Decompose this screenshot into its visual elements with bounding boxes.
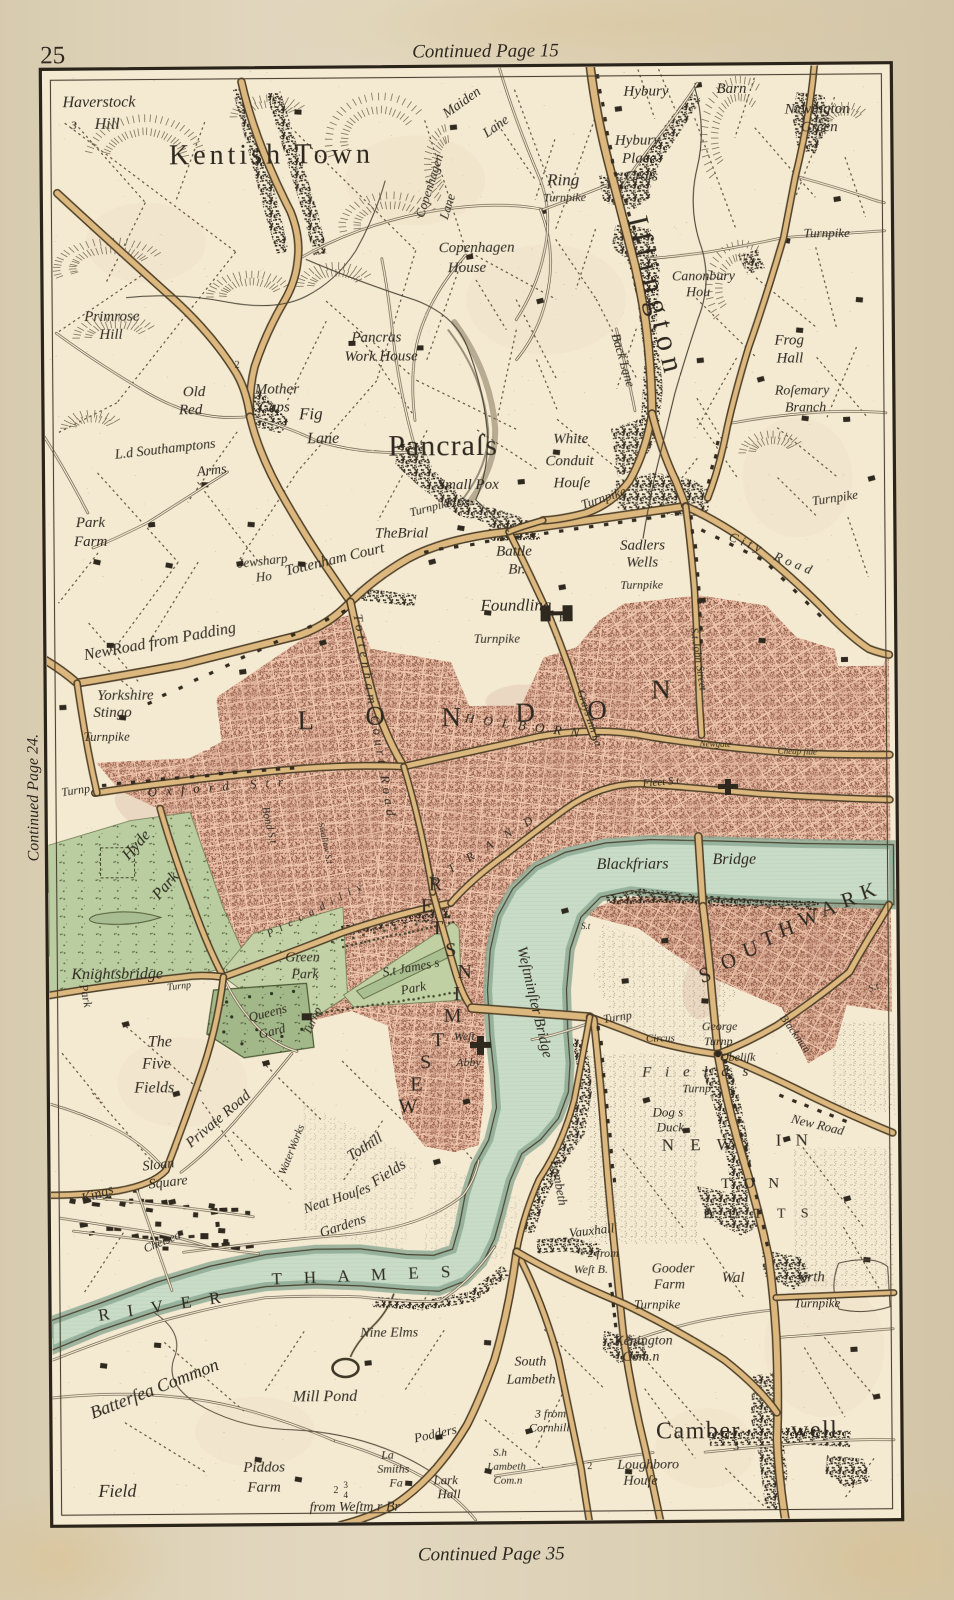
svg-text:Piddos: Piddos xyxy=(242,1459,285,1475)
svg-text:Stingo: Stingo xyxy=(93,705,132,721)
svg-text:George: George xyxy=(702,1019,738,1033)
svg-text:Battle: Battle xyxy=(496,544,532,560)
svg-text:I: I xyxy=(453,983,460,1005)
svg-text:Haverstock: Haverstock xyxy=(61,94,136,112)
svg-text:The: The xyxy=(148,1033,172,1050)
svg-text:Farm: Farm xyxy=(246,1480,281,1496)
svg-text:Br.: Br. xyxy=(508,562,525,578)
svg-text:3: 3 xyxy=(70,118,77,132)
svg-text:Lambeth: Lambeth xyxy=(486,1461,526,1473)
svg-text:White: White xyxy=(553,431,588,447)
svg-text:Com.n: Com.n xyxy=(622,1350,659,1365)
svg-text:Fig: Fig xyxy=(298,404,323,423)
svg-text:Turnp: Turnp xyxy=(704,1034,733,1048)
svg-text:Continued Page 24.: Continued Page 24. xyxy=(25,734,43,862)
svg-text:Cornhill: Cornhill xyxy=(529,1420,570,1434)
svg-text:2: 2 xyxy=(235,360,240,371)
svg-text:Pancras: Pancras xyxy=(350,330,401,346)
svg-text:E: E xyxy=(421,895,433,917)
svg-text:Farm: Farm xyxy=(73,534,108,550)
svg-text:4: 4 xyxy=(343,1490,348,1500)
svg-text:S.t: S.t xyxy=(581,921,591,931)
svg-text:Newington: Newington xyxy=(784,101,850,118)
svg-text:25: 25 xyxy=(40,42,65,69)
svg-text:Barn: Barn xyxy=(716,81,746,97)
svg-text:Primrose: Primrose xyxy=(83,309,140,325)
svg-text:Conduit: Conduit xyxy=(545,453,594,469)
svg-text:Obeliſk: Obeliſk xyxy=(720,1050,756,1064)
svg-text:Small Pox: Small Pox xyxy=(438,477,500,493)
svg-text:South: South xyxy=(514,1354,546,1369)
svg-text:Wal: Wal xyxy=(722,1270,745,1286)
svg-text:M: M xyxy=(444,1005,462,1027)
svg-text:TheBrial: TheBrial xyxy=(375,525,428,541)
svg-text:Weſt B.: Weſt B. xyxy=(574,1262,608,1276)
svg-text:L: L xyxy=(297,705,314,735)
svg-text:T: T xyxy=(431,917,443,939)
svg-text:Blackfriars: Blackfriars xyxy=(596,855,668,873)
svg-text:2: 2 xyxy=(587,1461,592,1472)
svg-text:Ring: Ring xyxy=(546,170,579,189)
svg-text:Fields: Fields xyxy=(133,1079,174,1096)
svg-text:Copenhagen: Copenhagen xyxy=(439,240,515,257)
svg-text:Lambeth: Lambeth xyxy=(506,1372,556,1387)
svg-text:Hall: Hall xyxy=(436,1486,461,1501)
svg-text:Farm: Farm xyxy=(653,1277,685,1292)
svg-text:Pancraſs: Pancraſs xyxy=(388,429,498,463)
svg-text:3: 3 xyxy=(343,1480,348,1490)
svg-text:1: 1 xyxy=(580,1247,585,1257)
svg-text:S.h: S.h xyxy=(493,1447,507,1459)
svg-text:Turnpike: Turnpike xyxy=(804,225,851,240)
svg-text:2: 2 xyxy=(333,1485,338,1496)
svg-text:Green: Green xyxy=(285,950,320,965)
svg-text:Lark: Lark xyxy=(432,1472,458,1487)
svg-text:Canonbury: Canonbury xyxy=(672,269,736,285)
svg-text:Frog: Frog xyxy=(773,332,804,348)
svg-text:Gooder: Gooder xyxy=(652,1261,695,1276)
svg-text:Duck: Duck xyxy=(656,1119,685,1134)
svg-text:Newgate: Newgate xyxy=(699,738,732,749)
svg-text:N E W: N E W xyxy=(662,1135,739,1155)
svg-text:Turnpike: Turnpike xyxy=(474,631,521,646)
svg-text:Roſemary: Roſemary xyxy=(774,383,830,398)
svg-text:La: La xyxy=(380,1448,394,1462)
svg-text:Cheap ſide: Cheap ſide xyxy=(778,746,818,757)
svg-text:Nine Elms: Nine Elms xyxy=(359,1325,419,1340)
svg-text:Sadlers: Sadlers xyxy=(620,537,665,553)
svg-text:Bridge: Bridge xyxy=(712,851,756,868)
svg-text:Knightsbridge: Knightsbridge xyxy=(70,965,163,983)
svg-text:Kenington: Kenington xyxy=(613,1333,672,1348)
svg-text:2 from: 2 from xyxy=(588,1246,620,1260)
svg-text:Mill Pond: Mill Pond xyxy=(292,1388,359,1406)
svg-text:Hill: Hill xyxy=(94,116,121,133)
svg-text:Fa: Fa xyxy=(388,1476,402,1490)
svg-text:3 from: 3 from xyxy=(534,1406,567,1420)
svg-text:Hybury: Hybury xyxy=(622,83,668,99)
svg-text:Abby: Abby xyxy=(455,1055,481,1069)
svg-text:N: N xyxy=(651,674,671,704)
svg-text:Caps: Caps xyxy=(259,399,290,415)
svg-text:Croſs: Croſs xyxy=(625,169,658,185)
svg-text:Yorkshire: Yorkshire xyxy=(97,687,154,703)
svg-text:Com.n: Com.n xyxy=(493,1475,523,1487)
svg-text:N: N xyxy=(441,702,461,732)
svg-text:N: N xyxy=(457,961,472,983)
svg-text:Hybury: Hybury xyxy=(614,132,660,148)
svg-text:Turnpike: Turnpike xyxy=(83,729,130,744)
svg-text:Continued Page 15: Continued Page 15 xyxy=(412,40,559,62)
svg-text:Hill: Hill xyxy=(98,327,122,343)
svg-text:Foundling: Foundling xyxy=(479,595,551,615)
svg-text:F i e l d s: F i e l d s xyxy=(641,1064,753,1081)
svg-text:Turnpike: Turnpike xyxy=(620,577,663,591)
svg-text:Wells: Wells xyxy=(626,555,658,571)
svg-text:Park: Park xyxy=(290,967,319,982)
svg-text:S: S xyxy=(445,939,456,961)
svg-text:Hou: Hou xyxy=(685,285,710,300)
svg-text:Smiths: Smiths xyxy=(377,1462,409,1476)
svg-text:Continued Page 35: Continued Page 35 xyxy=(418,1543,565,1565)
svg-text:Hall: Hall xyxy=(776,350,804,366)
svg-text:Five: Five xyxy=(141,1055,171,1072)
svg-text:Old: Old xyxy=(183,384,206,400)
svg-text:Mother: Mother xyxy=(254,381,299,397)
svg-text:Turnpike: Turnpike xyxy=(634,1296,681,1311)
svg-text:Field: Field xyxy=(97,1481,137,1501)
svg-text:Green: Green xyxy=(801,119,838,135)
svg-text:Ho: Ho xyxy=(254,568,273,585)
svg-text:Turnp.: Turnp. xyxy=(682,1081,714,1095)
svg-text:Loughboro: Loughboro xyxy=(616,1457,679,1472)
svg-text:Turnpike: Turnpike xyxy=(794,1295,841,1310)
svg-text:Branch: Branch xyxy=(785,400,826,415)
svg-text:Houſe: Houſe xyxy=(552,475,590,491)
svg-text:3: 3 xyxy=(733,1439,739,1453)
svg-text:orth: orth xyxy=(800,1269,825,1285)
svg-text:Camber: Camber xyxy=(656,1418,741,1445)
svg-text:Lane: Lane xyxy=(306,430,339,447)
svg-text:I N: I N xyxy=(776,1130,813,1149)
svg-text:Houſe: Houſe xyxy=(622,1474,657,1489)
svg-text:Turnpike: Turnpike xyxy=(543,190,586,204)
svg-text:W: W xyxy=(398,1095,417,1117)
svg-text:Place: Place xyxy=(621,151,657,167)
svg-text:T: T xyxy=(432,1029,444,1051)
svg-text:Dog s: Dog s xyxy=(651,1104,683,1119)
svg-text:T O N: T O N xyxy=(721,1176,784,1192)
svg-text:E: E xyxy=(410,1073,422,1095)
svg-text:S: S xyxy=(420,1051,431,1073)
svg-text:Kentish Town: Kentish Town xyxy=(169,139,374,172)
svg-text:B U T T S: B U T T S xyxy=(703,1206,814,1222)
svg-text:House: House xyxy=(447,260,487,276)
svg-text:well: well xyxy=(791,1417,839,1443)
svg-text:H: H xyxy=(559,609,569,624)
svg-text:Circus: Circus xyxy=(646,1032,675,1044)
svg-text:Weſt: Weſt xyxy=(454,1029,476,1043)
svg-text:Red: Red xyxy=(178,402,203,418)
svg-text:Work House: Work House xyxy=(344,348,418,365)
svg-text:Park: Park xyxy=(75,515,106,531)
